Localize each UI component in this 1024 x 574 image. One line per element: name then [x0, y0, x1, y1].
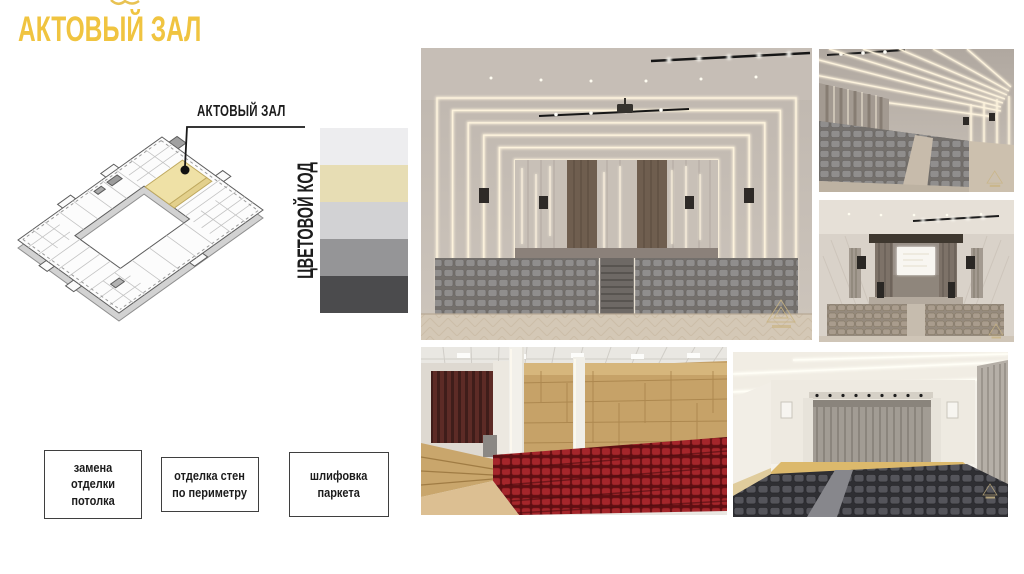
- note-label: замена отделки потолка: [71, 460, 115, 509]
- photo-hall-dark-seats: [733, 352, 1008, 517]
- palette-title: ЦВЕТОВОЙ КОД: [293, 128, 318, 313]
- swatch-light-gray: [320, 202, 408, 239]
- presentation-slide: { "slide": { "title": "АКТОВЫЙ ЗАЛ", "ac…: [0, 0, 1024, 574]
- photo-stage-render: [819, 200, 1014, 342]
- callout-label: АКТОВЫЙ ЗАЛ: [197, 103, 286, 121]
- location-dot: [181, 166, 190, 175]
- page-title: АКТОВЫЙ ЗАЛ: [18, 10, 201, 50]
- note-box-parquet: шлифовка паркета: [289, 452, 389, 517]
- note-label: шлифовка паркета: [310, 468, 368, 501]
- note-box-walls: отделка стен по периметру: [161, 457, 259, 512]
- swatch-cream: [320, 165, 408, 202]
- photo-side-render: [819, 49, 1014, 192]
- note-box-ceiling: замена отделки потолка: [44, 450, 142, 519]
- swatch-dark-gray: [320, 276, 408, 313]
- note-label: отделка стен по периметру: [173, 468, 248, 501]
- clipped-decoration: [110, 0, 140, 8]
- photo-existing-hall: [421, 347, 727, 515]
- photo-main-render: [421, 48, 812, 340]
- swatch-medium-gray: [320, 239, 408, 276]
- swatch-off-white: [320, 128, 408, 165]
